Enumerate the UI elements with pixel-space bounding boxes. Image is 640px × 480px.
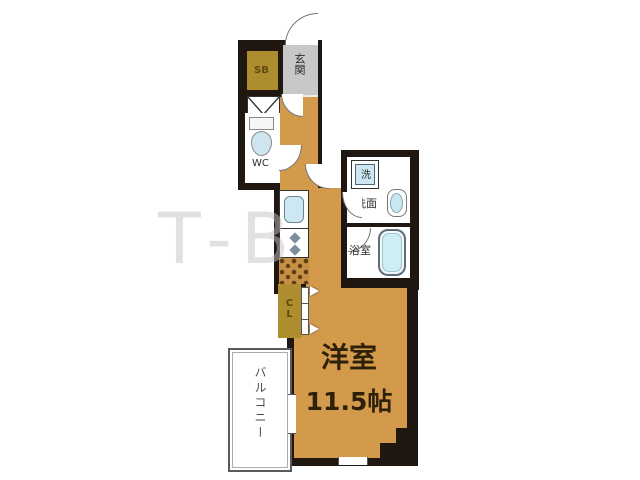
entrance-hall: 玄関 [283,45,318,95]
bathtub [378,229,406,276]
balcony-window [288,394,296,434]
shoe-box: SB [247,51,278,90]
washing-machine: 洗 [355,164,375,185]
fold-line [302,303,308,304]
closet-folding-door [301,287,309,335]
closet: CL [278,284,301,338]
bathroom: 浴室 [347,227,410,278]
door-swing-marker-top [310,286,319,296]
bathroom-label: 浴室 [349,245,371,256]
toilet-tank [249,117,274,130]
refrigerator-space [279,258,309,284]
door-swing-marker-bottom [310,324,319,334]
vanity-sink-basin [390,193,403,213]
counter-divider [280,228,308,229]
toilet-label: WC [252,159,269,169]
corridor-floor [306,188,341,292]
main-room-title: 洋室 11.5帖 [294,336,404,418]
bottom-window [338,457,368,465]
pillar-step-2 [380,443,418,466]
kitchen-counter [279,190,309,258]
floor-plan: T-B 玄関 SB WC [0,0,640,480]
bathtub-basin [382,233,402,272]
laundry-label: 洗 [361,171,371,181]
main-room-size: 11.5帖 [294,382,404,418]
vanity-sink [387,189,407,217]
stove-burner-2 [289,244,300,255]
closet-label: CL [284,298,294,320]
balcony-label: バルコニー [254,366,266,441]
stove-burner-1 [289,232,300,243]
laundry-pan: 洗 [351,160,379,189]
fold-line [302,319,308,320]
toilet-bowl [251,131,272,156]
kitchen-sink [284,196,304,223]
main-room-label: 洋室 [294,336,404,376]
balcony: バルコニー [228,348,292,472]
entrance-label: 玄関 [294,53,305,75]
shoe-box-label: SB [254,65,269,76]
toilet-room: WC [245,113,280,183]
